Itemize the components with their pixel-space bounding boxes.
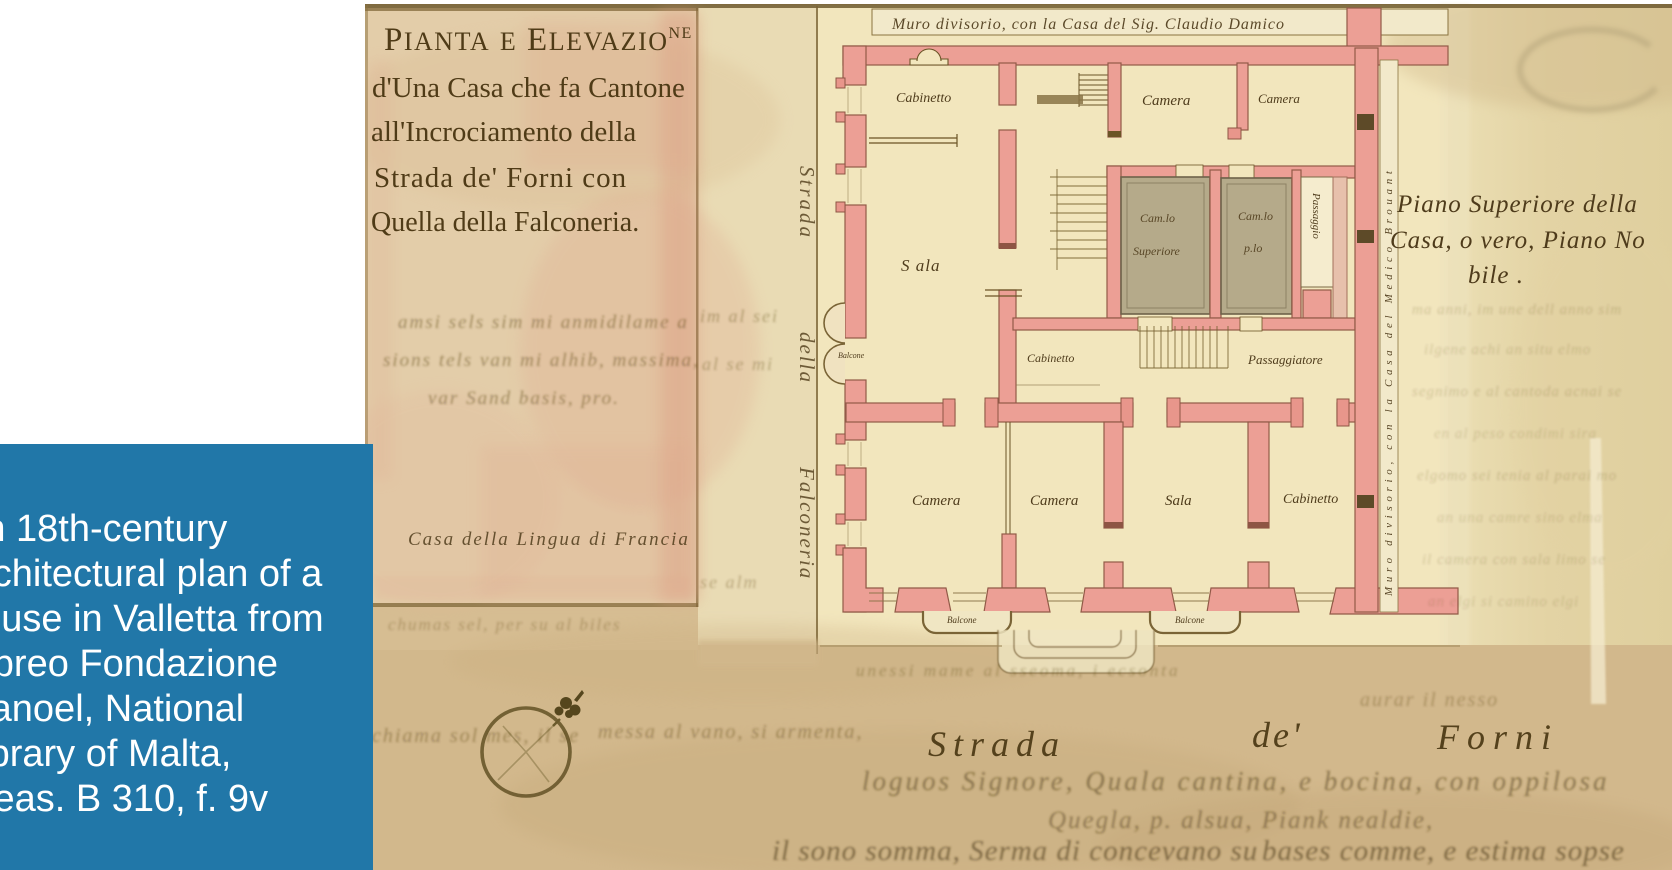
svg-text:bases comme, e estima sopse: bases comme, e estima sopse xyxy=(1262,835,1625,867)
svg-text:Camera: Camera xyxy=(1030,493,1078,509)
svg-text:An 18th-century: An 18th-century xyxy=(0,508,227,550)
svg-text:PIANTA E ELEVAZIONE: PIANTA E ELEVAZIONE xyxy=(384,22,693,58)
svg-text:Superiore: Superiore xyxy=(1133,244,1181,258)
svg-text:Cabinetto: Cabinetto xyxy=(896,91,951,106)
svg-text:var Sand basis, pro.: var Sand basis, pro. xyxy=(428,388,620,409)
svg-text:elgomo sei tenia al parai mo: elgomo sei tenia al parai mo xyxy=(1417,468,1617,484)
svg-text:chumas sel, per su al biles: chumas sel, per su al biles xyxy=(388,615,621,634)
svg-text:Sala: Sala xyxy=(1165,493,1192,509)
svg-text:Albreo Fondazione: Albreo Fondazione xyxy=(0,643,278,685)
svg-text:all'Incrociamento della: all'Incrociamento della xyxy=(371,116,636,148)
svg-text:Balcone: Balcone xyxy=(838,351,865,360)
svg-text:segnimo e al cantoda acnai se: segnimo e al cantoda acnai se xyxy=(1412,384,1622,400)
svg-text:Casa, o vero, Piano No: Casa, o vero, Piano No xyxy=(1390,227,1646,254)
svg-text:Balcone: Balcone xyxy=(1175,615,1205,625)
svg-text:architectural plan of a: architectural plan of a xyxy=(0,553,323,595)
svg-text:Passaggiatore: Passaggiatore xyxy=(1247,352,1323,367)
svg-text:p.lo: p.lo xyxy=(1243,241,1262,255)
svg-text:Casa della Lingua di Franc: Casa della Lingua di Francia xyxy=(408,529,690,550)
svg-text:house in Valletta from: house in Valletta from xyxy=(0,598,324,640)
svg-text:Manoel, National: Manoel, National xyxy=(0,688,244,730)
svg-text:bile .: bile . xyxy=(1468,262,1524,289)
svg-text:amsi sels sim mi anmidilame a: amsi sels sim mi anmidilame a xyxy=(398,312,689,333)
svg-text:Cam.lo: Cam.lo xyxy=(1238,209,1273,223)
svg-text:aurar il nesso: aurar il nesso xyxy=(1360,689,1499,711)
svg-text:Strada: Strada xyxy=(928,724,1066,764)
svg-text:Falconeria: Falconeria xyxy=(795,466,819,580)
svg-text:il camera con sala limo se: il camera con sala limo se xyxy=(1422,552,1606,568)
svg-text:Strada: Strada xyxy=(795,166,819,240)
svg-text:S ala: S ala xyxy=(901,256,940,275)
svg-text:ma anni, im une dell anno sim: ma anni, im une dell anno sim xyxy=(1412,302,1622,318)
svg-text:im al sei: im al sei xyxy=(700,306,779,326)
svg-text:Camera: Camera xyxy=(912,493,960,509)
svg-text:Passaggio: Passaggio xyxy=(1310,192,1322,239)
svg-text:chiama sol mes, il se: chiama sol mes, il se xyxy=(372,725,580,747)
svg-text:ilgene achi an situ elmo: ilgene achi an situ elmo xyxy=(1424,342,1591,358)
svg-text:Quella della Falconeria.: Quella della Falconeria. xyxy=(371,207,639,238)
svg-text:il sono somma, Serma di concev: il sono somma, Serma di concevano su xyxy=(772,835,1258,867)
svg-text:Cabinetto: Cabinetto xyxy=(1027,351,1074,365)
svg-text:Piano Superiore della: Piano Superiore della xyxy=(1396,191,1638,218)
svg-text:sions tels van mi alhib, massi: sions tels van mi alhib, massima, xyxy=(383,350,700,371)
svg-text:d'Una Casa che fa Cantone: d'Una Casa che fa Cantone xyxy=(372,72,685,104)
svg-text:an elgi si camino elgi: an elgi si camino elgi xyxy=(1428,594,1579,610)
svg-text:al se mi: al se mi xyxy=(702,354,774,374)
svg-text:an una camre sino elma: an una camre sino elma xyxy=(1437,510,1603,526)
svg-text:Cam.lo: Cam.lo xyxy=(1140,211,1175,225)
svg-text:de': de' xyxy=(1252,715,1303,755)
svg-text:Forni: Forni xyxy=(1436,717,1559,757)
svg-text:Cabinetto: Cabinetto xyxy=(1283,492,1338,507)
svg-text:Camera: Camera xyxy=(1142,93,1190,109)
svg-text:Camera: Camera xyxy=(1258,91,1300,106)
svg-text:Quegla, p. alsua, Piank nealdi: Quegla, p. alsua, Piank nealdie, xyxy=(1048,807,1434,834)
svg-text:messa al vano, si armenta,: messa al vano, si armenta, xyxy=(598,721,863,743)
svg-text:Treas. B 310, f. 9v: Treas. B 310, f. 9v xyxy=(0,778,268,820)
svg-text:Library of Malta,: Library of Malta, xyxy=(0,733,231,775)
svg-text:en al peso condimi sira: en al peso condimi sira xyxy=(1434,426,1597,442)
svg-text:loguos Signore, Quala cantina,: loguos Signore, Quala cantina, e bocina,… xyxy=(862,766,1609,796)
svg-text:della: della xyxy=(795,332,819,384)
svg-text:Balcone: Balcone xyxy=(947,615,977,625)
svg-text:se alm: se alm xyxy=(700,572,759,592)
svg-text:Strada de' Forni con: Strada de' Forni con xyxy=(374,162,627,194)
svg-text:Muro divisorio, con la Casa de: Muro divisorio, con la Casa del Sig. Cla… xyxy=(891,16,1284,33)
svg-text:unessi mame al sseoma, i ecson: unessi mame al sseoma, i ecsonta xyxy=(856,661,1181,680)
